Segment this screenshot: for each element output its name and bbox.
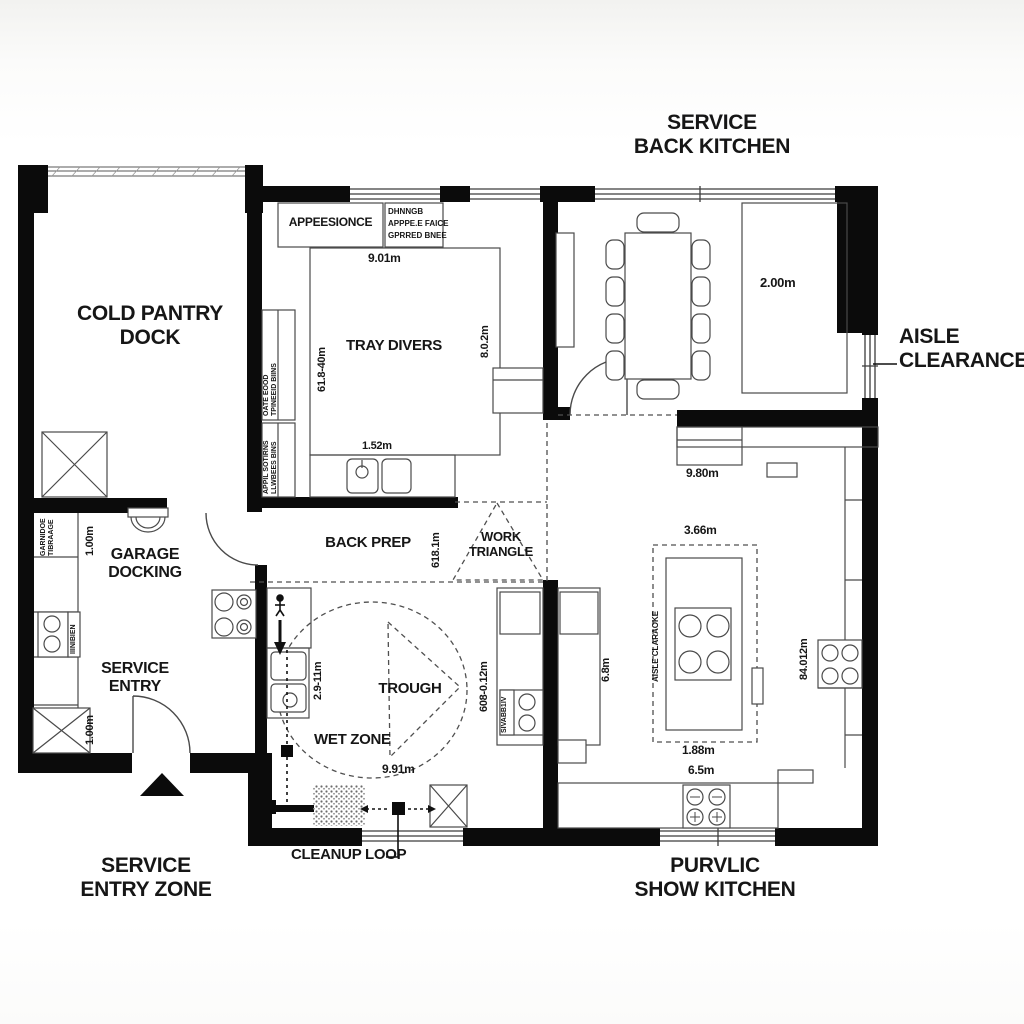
- note-strip-b: APPIL SOTIRNS LLWBEES BINS: [263, 440, 279, 494]
- room-line: GARAGE: [90, 546, 200, 564]
- note-line: DHNNGB: [388, 206, 442, 218]
- label-cleanup-loop: CLEANUP LOOP: [291, 847, 406, 864]
- room-tray-divers: TRAY DIVERS: [330, 338, 458, 355]
- room-line: DOCKING: [90, 564, 200, 582]
- dim-show-counter: 6.8m: [600, 658, 612, 682]
- flow-arrow-down: [274, 620, 286, 655]
- title-line: PURVLIC: [615, 854, 815, 878]
- note-line: OATE EOOD: [263, 375, 270, 416]
- label-line: AISLE: [899, 325, 1024, 349]
- room-wet-zone: WET ZONE: [314, 732, 391, 749]
- title-service-back-kitchen: SERVICE BACK KITCHEN: [612, 111, 812, 158]
- note-appliance-box: APPEESIONCE: [280, 216, 381, 229]
- fixtures: [33, 203, 878, 828]
- room-back-prep: BACK PREP: [318, 535, 418, 552]
- room-service-entry: SERVICE ENTRY: [85, 660, 185, 696]
- walker-icon: [275, 595, 285, 616]
- note-line: LLWBEES BINS: [271, 441, 278, 494]
- title-line: SERVICE: [612, 111, 812, 135]
- room-line: ENTRY: [85, 678, 185, 696]
- title-purvlic-show-kitchen: PURVLIC SHOW KITCHEN: [615, 854, 815, 901]
- dim-island-top: 3.66m: [684, 524, 717, 537]
- note-stove-strip: IIINIBIEN: [70, 624, 78, 654]
- dim-island-bottom: 1.88m: [682, 744, 715, 757]
- show-right-counter: [818, 447, 862, 768]
- dim-tray-left: 61.8-40m: [316, 347, 328, 392]
- room-trough: TROUGH: [378, 681, 442, 698]
- pass-rect: [742, 203, 847, 393]
- dim-garage-bottom: 1.00m: [84, 715, 96, 745]
- note-line: APPPE.E FAICE: [388, 218, 442, 230]
- dining-cabinet: [556, 233, 574, 347]
- dim-garage-top: 1.00m: [84, 526, 96, 556]
- note-line: APPIL SOTIRNS: [263, 440, 270, 494]
- dim-island-aisle: AISLE CLARAOKE: [652, 611, 661, 682]
- dim-right-wall: 84.012m: [798, 639, 810, 680]
- title-line: SHOW KITCHEN: [615, 878, 815, 902]
- garage-door-band: [48, 167, 245, 176]
- room-line: DOCK: [50, 326, 250, 350]
- note-line: TIBRAAGE: [48, 519, 55, 556]
- tray-fridge: [493, 368, 543, 413]
- room-cold-pantry-dock: COLD PANTRY DOCK: [50, 302, 250, 349]
- wet-left-counter: [267, 588, 311, 718]
- dim-wet-left: 2.9-11m: [312, 662, 324, 700]
- dim-mid-counter: 608-0.12m: [478, 661, 490, 712]
- title-service-entry-zone: SERVICE ENTRY ZONE: [46, 854, 246, 901]
- entry-shaft-box: [33, 708, 90, 753]
- title-line: BACK KITCHEN: [612, 135, 812, 159]
- dim-island-run: 6.5m: [688, 764, 714, 777]
- note-burner-strip: SIVABB1IV: [501, 697, 509, 733]
- walls: [18, 165, 878, 846]
- label-line: CLEARANCE: [899, 349, 1024, 373]
- dim-sink-run: 1.52m: [362, 440, 392, 452]
- note-garage-strip: GARNIDOE TIBRAAGE: [40, 518, 56, 556]
- prep-sink-counter: [310, 455, 455, 497]
- dining-table-set: [606, 213, 710, 399]
- pantry-shaft-box: [42, 432, 107, 497]
- note-line: TPINEEID BIINS: [271, 363, 278, 416]
- garage-sink: [128, 508, 168, 532]
- cleanup-loop-path: [262, 595, 436, 857]
- note-line: GPRRED BNEE: [388, 230, 442, 242]
- label-aisle-clearance: AISLE CLEARANCE: [899, 325, 1024, 372]
- room-line: COLD PANTRY: [50, 302, 250, 326]
- dim-tray-width: 9.01m: [368, 252, 401, 265]
- title-line: ENTRY ZONE: [46, 878, 246, 902]
- note-appliance-list: DHNNGB APPPE.E FAICE GPRRED BNEE: [388, 206, 442, 242]
- dim-counter-run: 9.80m: [686, 467, 719, 480]
- garage-range: [212, 590, 256, 638]
- floor-mat: [313, 785, 365, 826]
- dim-wet-width: 9.91m: [382, 763, 415, 776]
- garage-stove: [38, 612, 68, 657]
- floor-plan-canvas: SERVICE BACK KITCHEN AISLE CLEARANCE SER…: [0, 0, 1024, 1024]
- title-line: SERVICE: [46, 854, 246, 878]
- island: [666, 558, 763, 730]
- note-strip-a: OATE EOOD TPINEEID BIINS: [263, 363, 279, 416]
- dim-prep-depth: 618.1m: [430, 532, 442, 568]
- dim-tray-right: 8.0.2m: [479, 326, 491, 358]
- room-line: TRIANGLE: [455, 545, 547, 560]
- room-line: SERVICE: [85, 660, 185, 678]
- note-line: GARNIDOE: [40, 518, 47, 556]
- wet-shaft-box: [430, 785, 467, 827]
- room-garage-docking: GARAGE DOCKING: [90, 546, 200, 582]
- show-bottom-counter: [558, 770, 813, 828]
- room-line: WORK: [455, 530, 547, 545]
- dim-pass-rect: 2.00m: [760, 276, 795, 291]
- room-work-triangle: WORK TRIANGLE: [455, 530, 547, 559]
- entry-arrow: [140, 773, 184, 796]
